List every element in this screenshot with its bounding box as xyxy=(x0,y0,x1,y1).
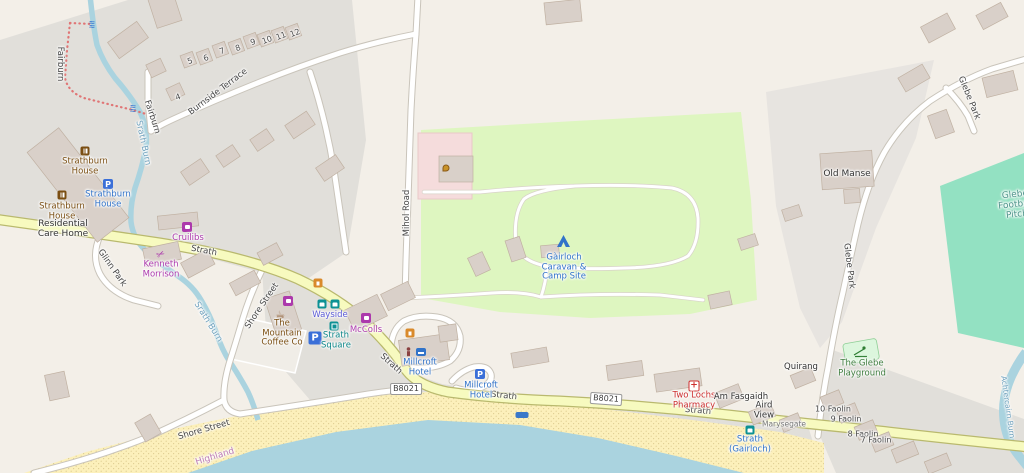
pharmacy-icon: + xyxy=(689,381,700,392)
care-home-icon xyxy=(58,191,67,200)
fast-food-icon-1 xyxy=(314,279,323,288)
hotel-icon-millcroft xyxy=(416,348,426,356)
ford-icon-1: ≈≈ xyxy=(89,21,96,29)
fire-station-icon xyxy=(443,165,450,172)
shop-icon-cruilibs xyxy=(182,222,192,232)
parking-icon-strathburn: P xyxy=(103,179,113,189)
football-pitch-area xyxy=(940,153,1024,348)
cafe-icon: ☕ xyxy=(275,309,285,322)
route-shield-b8021-2: B8021 xyxy=(590,392,623,406)
route-shield-b8021-1: B8021 xyxy=(390,383,422,395)
historic-house-icon xyxy=(81,147,90,156)
slipway-icon xyxy=(516,412,529,418)
hostel-icon xyxy=(407,347,411,356)
playground-area xyxy=(843,338,880,365)
parking-icon-millcroft: P xyxy=(475,369,485,379)
map-base-layer xyxy=(0,0,1024,473)
town-square-icon xyxy=(330,322,339,331)
shop-icon-mccolls xyxy=(361,313,371,323)
map-canvas[interactable]: Fairburn Fairburn Burnside Terrace Mihol… xyxy=(0,0,1024,473)
ford-icon-2: ≈≈ xyxy=(130,105,137,113)
viewpoint-icon xyxy=(331,300,340,309)
fast-food-icon-2 xyxy=(406,329,415,338)
bus-stop-icon-wayside xyxy=(318,300,327,309)
bookshop-icon xyxy=(283,296,293,306)
old-manse-building xyxy=(820,150,874,190)
bus-stop-icon-strath-gairloch xyxy=(746,426,755,435)
parking-icon-strath-square: P xyxy=(309,332,322,345)
